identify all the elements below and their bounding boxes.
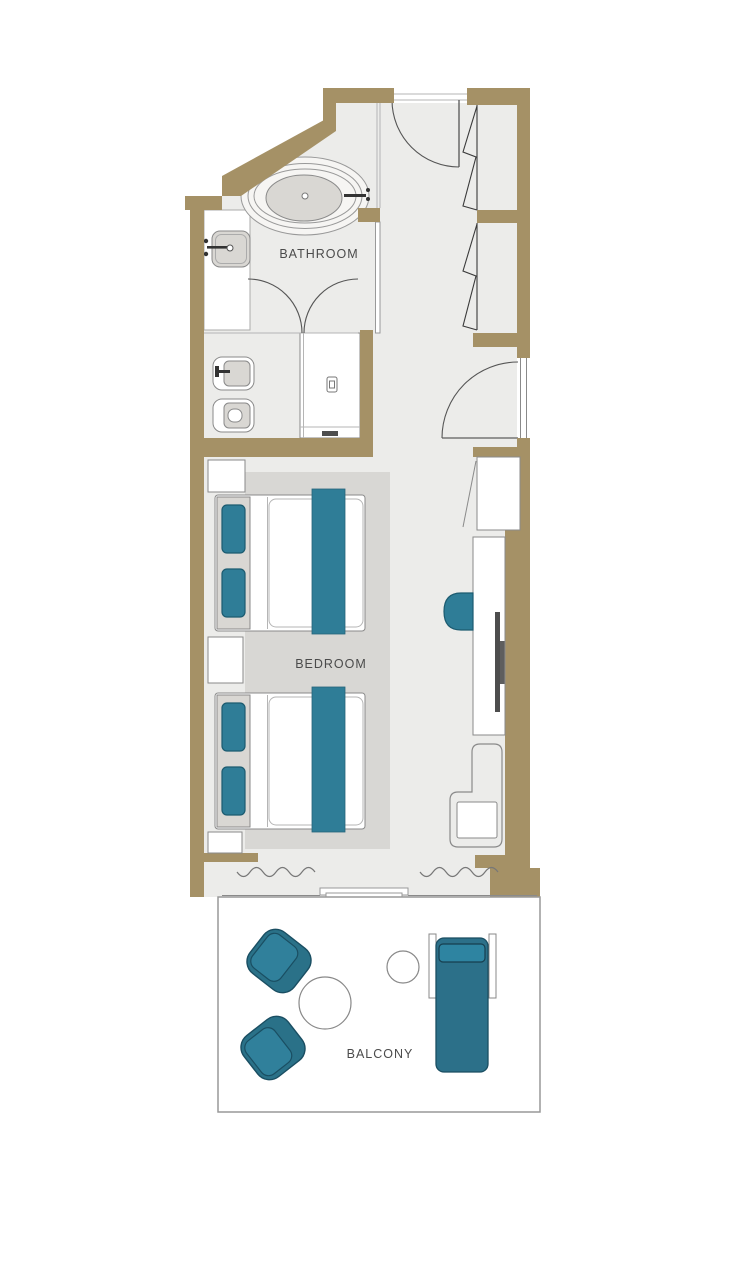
bedroom-label: BEDROOM xyxy=(295,657,367,671)
console-desk xyxy=(473,537,505,735)
bidet-basin xyxy=(224,361,250,386)
washbasin-drain xyxy=(227,245,233,251)
wall-window-stub-left xyxy=(204,853,258,862)
bathtub-tap-dot xyxy=(366,188,370,192)
tv-mount xyxy=(500,641,505,684)
pillow xyxy=(222,767,245,815)
desk-chair xyxy=(444,593,473,630)
wardrobe-hinged xyxy=(477,457,520,530)
round-coffee-table xyxy=(299,977,351,1029)
wall-bottom-right-block xyxy=(490,868,540,897)
toilet xyxy=(213,399,254,432)
vanity-counter xyxy=(204,210,250,330)
entry-threshold xyxy=(394,88,467,103)
washbasin-faucet xyxy=(207,246,228,249)
lounger-rail xyxy=(489,934,496,998)
pillow xyxy=(222,703,245,751)
nightstand xyxy=(208,637,243,683)
nightstand xyxy=(208,832,242,853)
pocket-door-panel xyxy=(376,222,381,333)
wall-wc-bottom xyxy=(192,438,373,457)
bed-1 xyxy=(215,489,365,634)
bidet-faucet xyxy=(215,366,219,377)
lounger-rail xyxy=(429,934,436,998)
wall-window-stub-right xyxy=(475,855,530,868)
toilet-bowl xyxy=(228,409,242,422)
sun-lounger xyxy=(429,934,496,1072)
wall-left xyxy=(190,210,204,897)
wall-closet-divider-3 xyxy=(473,447,520,457)
washbasin-tap-dot xyxy=(204,239,208,243)
bed-runner xyxy=(312,687,345,832)
floor-plan-svg: BATHROOM BEDROOM BALCONY xyxy=(0,0,732,1262)
connecting-door-opening xyxy=(517,358,530,438)
pillow xyxy=(222,505,245,553)
wall-left-step xyxy=(185,196,222,210)
bed-runner xyxy=(312,489,345,634)
wall-bath-chunk xyxy=(358,208,380,222)
side-table xyxy=(457,802,497,838)
washbasin-tap-dot xyxy=(204,252,208,256)
balcony xyxy=(218,897,540,1112)
balcony-label: BALCONY xyxy=(347,1047,414,1061)
bathtub-tap-dot xyxy=(366,197,370,201)
shower-drain-bar xyxy=(322,431,338,436)
nightstand xyxy=(208,460,245,492)
tv-screen xyxy=(495,612,500,712)
floor-plan-canvas: BATHROOM BEDROOM BALCONY xyxy=(0,0,732,1262)
wall-closet-divider-1 xyxy=(477,210,517,223)
bathroom-label: BATHROOM xyxy=(279,247,358,261)
bidet xyxy=(213,357,254,390)
wall-closet-divider-2 xyxy=(473,333,520,347)
bed-2 xyxy=(215,687,365,832)
lounger-cushion xyxy=(439,944,485,962)
round-side-table xyxy=(387,951,419,983)
wall-right-thick xyxy=(505,530,530,855)
wall-shower-right xyxy=(360,330,373,457)
pillow xyxy=(222,569,245,617)
bathtub-drain xyxy=(302,193,308,199)
shower-head-icon xyxy=(327,377,337,392)
bidet-faucet-arm xyxy=(219,370,230,373)
bathtub-faucet xyxy=(344,194,366,197)
wall-right-upper xyxy=(517,88,530,358)
